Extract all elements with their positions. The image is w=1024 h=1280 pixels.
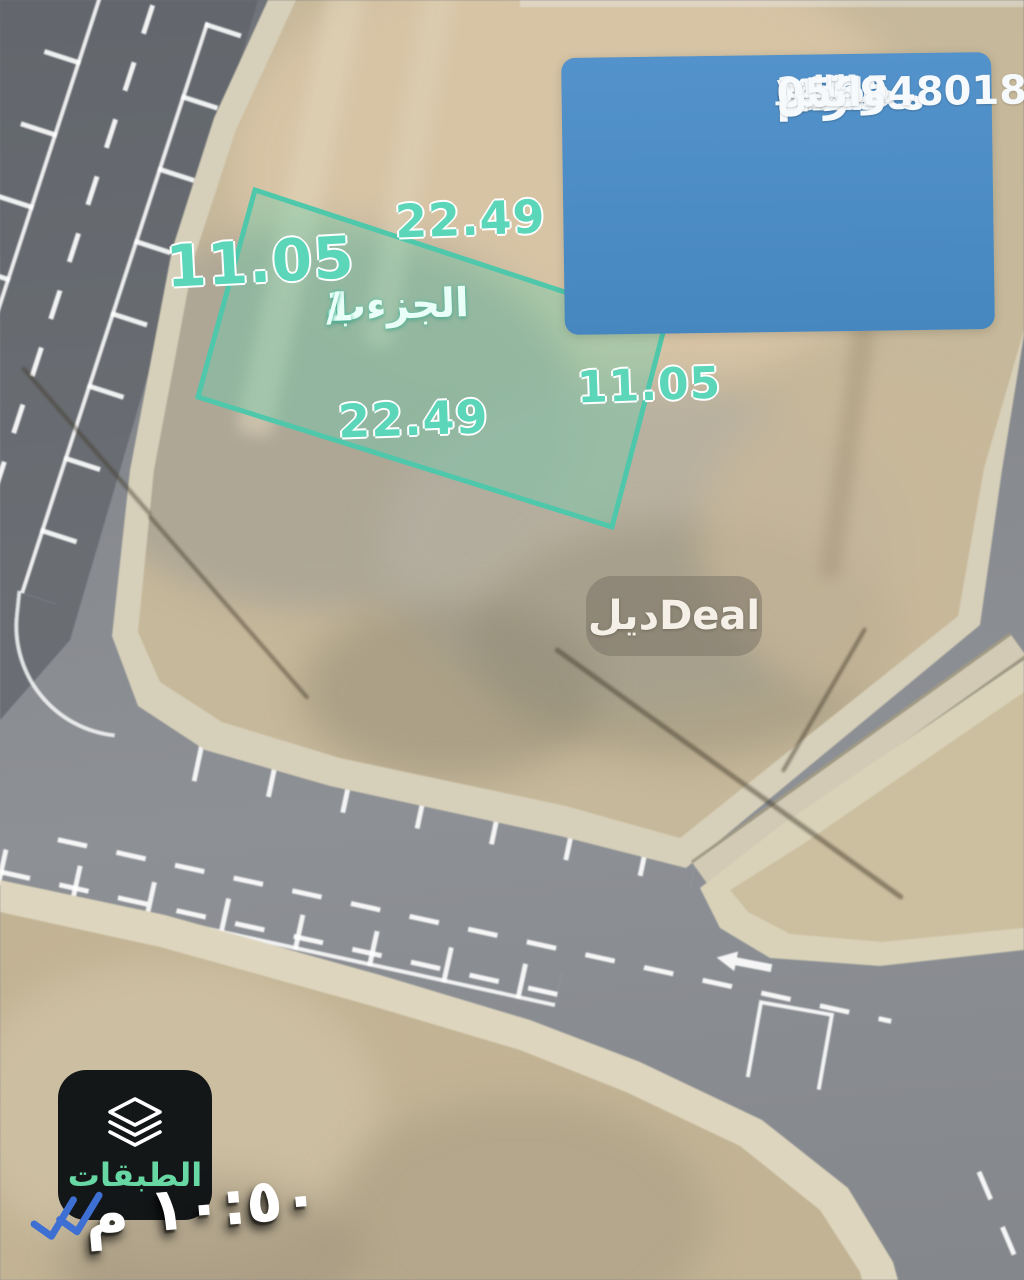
- layers-icon: [106, 1096, 164, 1150]
- dimension-label-right: 11.05: [576, 357, 722, 413]
- dimension-label-bottom: 22.49: [337, 389, 489, 448]
- listing-info-card: مخطط ارام ارض للبيع مساحه 247.5 م٢ ٥٤٠ ا…: [561, 52, 995, 335]
- watermark-deal: ديلDeal: [586, 576, 762, 656]
- listing-phone-line: 0569480187 واتس: [561, 68, 991, 74]
- watermark-arabic: ديل: [588, 593, 659, 639]
- dimension-label-top: 22.49: [394, 189, 546, 248]
- map-screenshot: 22.49 11.05 11.05 22.49 الجزءب 1 / ديلDe…: [0, 0, 1024, 1280]
- watermark-latin: Deal: [659, 593, 760, 639]
